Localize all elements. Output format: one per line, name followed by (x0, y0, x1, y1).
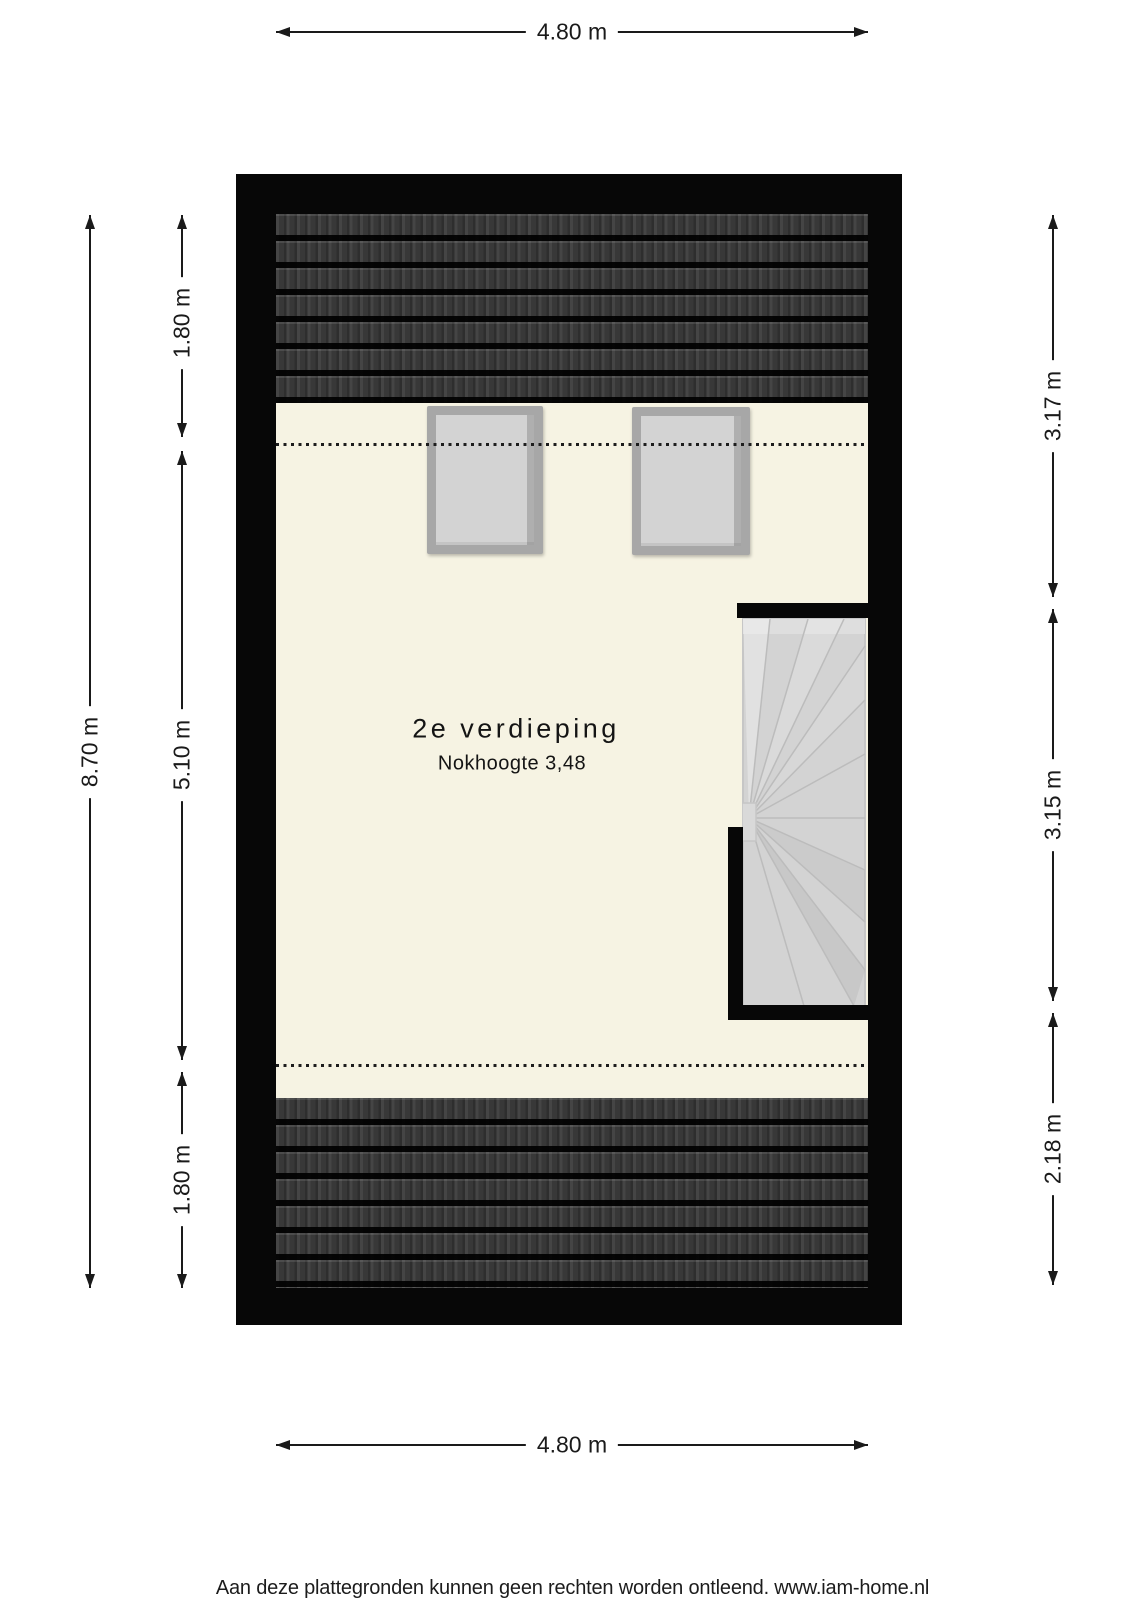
dimension-label: 3.17 m (1038, 360, 1069, 452)
arrowhead-up-icon (1048, 1013, 1058, 1027)
skylight-pane (641, 416, 741, 546)
skylight-pane (436, 415, 534, 545)
arrowhead-down-icon (1048, 583, 1058, 597)
dimension-label: 4.80 m (526, 17, 618, 48)
floorplan-canvas: 4.80 m (0, 0, 1145, 1620)
dimension-label: 8.70 m (75, 706, 106, 798)
skylight-1 (427, 406, 543, 554)
stair-newel (742, 803, 756, 841)
arrowhead-right-icon (854, 27, 868, 37)
arrowhead-up-icon (85, 215, 95, 229)
roof-tiles-top (276, 214, 868, 403)
arrowhead-up-icon (1048, 215, 1058, 229)
arrowhead-up-icon (1048, 609, 1058, 623)
arrowhead-right-icon (854, 1440, 868, 1450)
arrowhead-down-icon (177, 1046, 187, 1060)
dotted-height-line-top (276, 443, 868, 446)
skylight-2 (632, 407, 750, 555)
dotted-height-line-bottom (276, 1064, 868, 1067)
arrowhead-down-icon (1048, 1271, 1058, 1285)
dimension-label: 2.18 m (1038, 1103, 1069, 1195)
staircase (742, 618, 866, 1007)
arrowhead-down-icon (177, 1274, 187, 1288)
roof-tiles-bottom (276, 1098, 868, 1288)
stair-wall-left (728, 827, 743, 1020)
dimension-label: 1.80 m (167, 277, 198, 369)
stair-wall-bottom (730, 1005, 868, 1020)
stair-wall-top (737, 603, 868, 618)
arrowhead-left-icon (276, 1440, 290, 1450)
floor-subtitle: Nokhoogte 3,48 (438, 753, 586, 776)
dimension-label: 4.80 m (526, 1430, 618, 1461)
arrowhead-up-icon (177, 1072, 187, 1086)
arrowhead-up-icon (177, 215, 187, 229)
arrowhead-down-icon (85, 1274, 95, 1288)
dimension-label: 5.10 m (167, 709, 198, 801)
floor-title: 2e verdieping (412, 714, 620, 745)
arrowhead-up-icon (177, 451, 187, 465)
arrowhead-down-icon (177, 423, 187, 437)
arrowhead-down-icon (1048, 987, 1058, 1001)
dimension-label: 3.15 m (1038, 759, 1069, 851)
footer-disclaimer: Aan deze plattegronden kunnen geen recht… (0, 1577, 1145, 1600)
arrowhead-left-icon (276, 27, 290, 37)
dimension-label: 1.80 m (167, 1134, 198, 1226)
